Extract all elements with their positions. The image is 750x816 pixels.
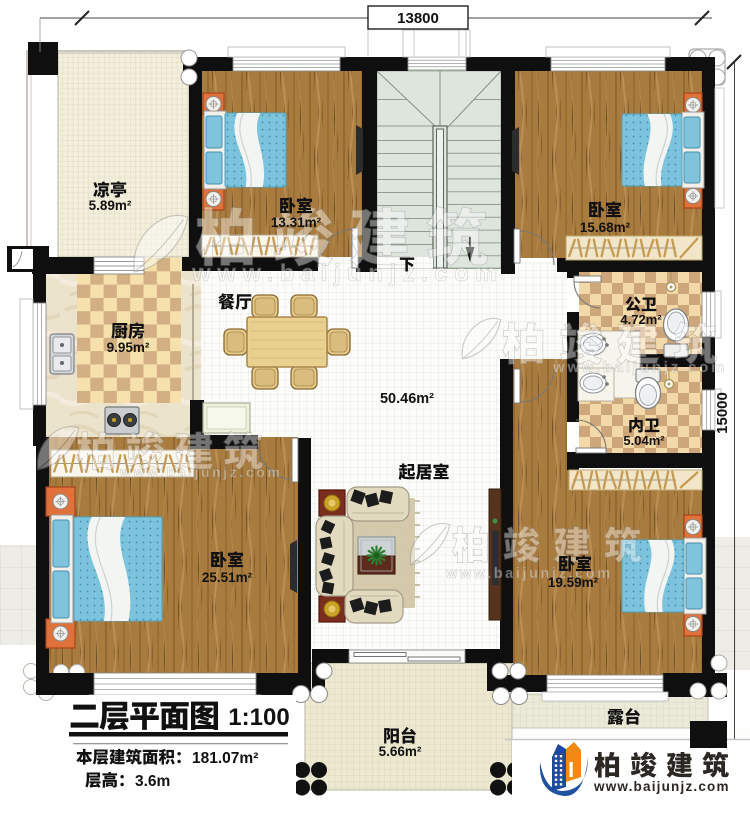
svg-text:15.68m²: 15.68m² [580, 220, 631, 235]
svg-text:1:100: 1:100 [228, 704, 289, 731]
svg-text:181.07m²: 181.07m² [192, 750, 258, 767]
svg-text:25.51m²: 25.51m² [202, 570, 253, 585]
svg-text:3.6m: 3.6m [135, 773, 170, 790]
svg-text:www.baijunjz.com: www.baijunjz.com [191, 260, 503, 287]
svg-text:www.baijunjz.com: www.baijunjz.com [593, 779, 730, 794]
svg-text:13800: 13800 [397, 10, 439, 27]
svg-text:5.04m²: 5.04m² [623, 433, 665, 448]
svg-text:www.baijunjz.com: www.baijunjz.com [119, 464, 282, 480]
svg-text:5.66m²: 5.66m² [379, 744, 422, 759]
svg-text:13.31m²: 13.31m² [271, 215, 322, 230]
svg-text:15000: 15000 [714, 392, 731, 434]
svg-text:9.95m²: 9.95m² [107, 340, 150, 355]
svg-text:4.72m²: 4.72m² [620, 312, 662, 327]
svg-text:5.89m²: 5.89m² [89, 198, 132, 213]
svg-text:19.59m²: 19.59m² [548, 575, 599, 590]
svg-text:www.baijunjz.com: www.baijunjz.com [552, 359, 727, 376]
svg-text:50.46m²: 50.46m² [380, 391, 434, 407]
